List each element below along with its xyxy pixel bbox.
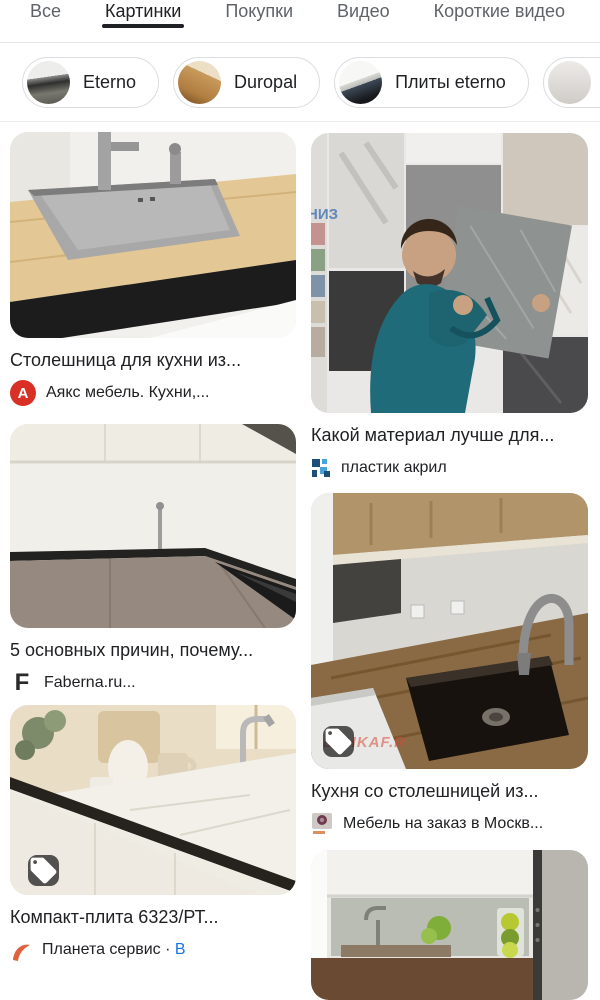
result-card[interactable]: Компакт-плита 6323/РТ... Планета сервис … — [10, 705, 296, 964]
result-source-row[interactable]: A Аякс мебель. Кухни,... — [10, 379, 296, 407]
tab-underline — [102, 24, 184, 28]
results-column-left: Столешница для кухни из... A Аякс мебель… — [10, 132, 296, 964]
tab-short-videos-label: Короткие видео — [434, 1, 565, 21]
result-source: Faberna.ru... — [44, 674, 136, 692]
chip-plity-eterno-thumbnail — [339, 61, 382, 104]
search-tabs: Все Картинки Покупки Видео Короткие виде… — [0, 0, 600, 43]
source-photo-favicon-icon — [311, 812, 333, 836]
product-tag-icon — [323, 726, 354, 757]
tab-all[interactable]: Все — [30, 0, 61, 42]
corner-kitchen-illustration — [10, 424, 296, 628]
result-source: Мебель на заказ в Москв... — [343, 815, 543, 833]
tab-videos-label: Видео — [337, 1, 390, 21]
tab-images-label: Картинки — [105, 1, 181, 21]
man-with-tile-illustration: НИЗ — [311, 133, 588, 413]
result-card[interactable] — [311, 850, 588, 1000]
tab-images[interactable]: Картинки — [105, 0, 181, 42]
chip-partial-thumbnail — [548, 61, 591, 104]
result-title[interactable]: Столешница для кухни из... — [10, 348, 296, 372]
product-tag-icon — [28, 855, 59, 886]
chip-plity-eterno-label: Плиты eterno — [395, 72, 506, 93]
chip-duropal-thumbnail — [178, 61, 221, 104]
tab-short-videos[interactable]: Короткие видео — [434, 0, 565, 42]
tab-videos[interactable]: Видео — [337, 0, 390, 42]
source-letter-logo-icon: F — [10, 671, 34, 695]
result-source-row[interactable]: Мебель на заказ в Москв... — [311, 810, 588, 838]
chip-eterno[interactable]: Eterno — [22, 57, 159, 108]
chip-eterno-thumbnail — [27, 61, 70, 104]
photo-sign-text: НИЗ — [311, 206, 338, 223]
result-card[interactable]: ESHKAF.R Кухня со столешницей из... Мебе… — [311, 493, 588, 838]
tab-shopping-label: Покупки — [225, 1, 293, 21]
result-card[interactable]: НИЗ Какой материал лучше для... — [311, 133, 588, 482]
result-title[interactable]: Компакт-плита 6323/РТ... — [10, 905, 296, 929]
result-card[interactable]: 5 основных причин, почему... F Faberna.r… — [10, 424, 296, 697]
source-blue-pixel-logo-icon — [311, 458, 331, 478]
result-image-dark-sink-kitchen[interactable]: ESHKAF.R — [311, 493, 588, 769]
result-image-steel-sink[interactable] — [10, 132, 296, 338]
chip-duropal[interactable]: Duropal — [173, 57, 320, 108]
result-title[interactable]: Какой материал лучше для... — [311, 423, 588, 447]
tab-all-label: Все — [30, 1, 61, 21]
result-image-beige-kitchen[interactable] — [10, 705, 296, 895]
result-source-row[interactable]: Планета сервис · В — [10, 936, 296, 964]
result-source: пластик акрил — [341, 459, 447, 477]
tab-shopping[interactable]: Покупки — [225, 0, 293, 42]
sink-photo-illustration — [10, 132, 296, 338]
chip-partial[interactable] — [543, 57, 600, 108]
source-orange-logo-icon — [10, 939, 32, 961]
results-column-right: НИЗ Какой материал лучше для... — [311, 133, 588, 1000]
result-card[interactable]: Столешница для кухни из... A Аякс мебель… — [10, 132, 296, 407]
source-letter-avatar-icon: A — [10, 380, 36, 406]
result-source: Планета сервис · В — [42, 941, 186, 959]
chip-plity-eterno[interactable]: Плиты eterno — [334, 57, 529, 108]
result-image-man-with-tile[interactable]: НИЗ — [311, 133, 588, 413]
result-source-row[interactable]: F Faberna.ru... — [10, 669, 296, 697]
result-source: Аякс мебель. Кухни,... — [46, 384, 209, 402]
result-image-corner-kitchen[interactable] — [10, 424, 296, 628]
white-kitchen-illustration — [311, 850, 588, 1000]
chip-eterno-label: Eterno — [83, 72, 136, 93]
result-title[interactable]: 5 основных причин, почему... — [10, 638, 296, 662]
filter-chips-row: Eterno Duropal Плиты eterno — [0, 44, 600, 122]
result-source-row[interactable]: пластик акрил — [311, 454, 588, 482]
result-title[interactable]: Кухня со столешницей из... — [311, 779, 588, 803]
result-image-white-kitchen-partial[interactable] — [311, 850, 588, 1000]
chip-duropal-label: Duropal — [234, 72, 297, 93]
stock-availability-link: В — [175, 941, 186, 958]
